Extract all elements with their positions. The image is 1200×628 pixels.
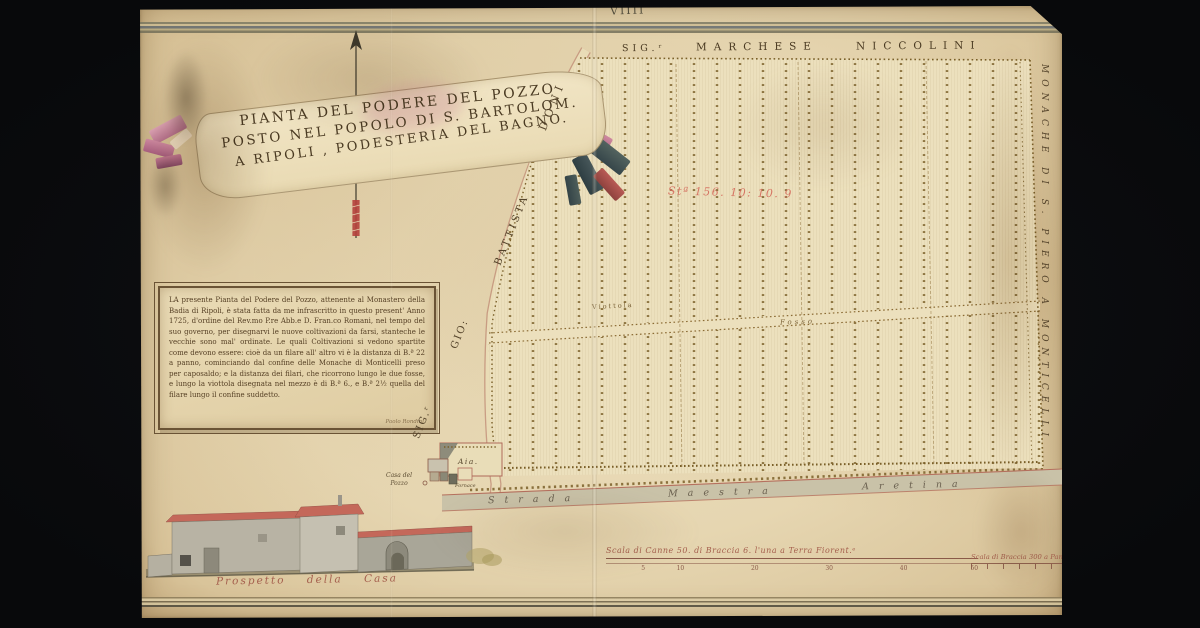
scale-bar-canne: Scala di Canne 50. di Braccia 6. l'una a… <box>606 546 988 573</box>
scale-bar-canne-ticks: 5 10 20 30 40 50 <box>606 564 978 573</box>
aia-label: Aia. <box>458 457 479 466</box>
neighbor-label-top-sig: SIG.ʳ <box>622 43 666 54</box>
scale-tick: 10 <box>677 565 685 572</box>
casa-label-line1: Casa del <box>386 472 412 480</box>
parchment-sheet: VIIII SIG.ʳ MARCHESE NICCOLINI MONACHE D… <box>140 6 1062 618</box>
fosso-label: Fosso <box>780 317 815 326</box>
casa-label-line2: Pozzo <box>386 480 412 488</box>
fornace-label: Fornace <box>455 483 476 489</box>
scale-tick: 5 <box>641 565 645 572</box>
casa-del-pozzo-label: Casa del Pozzo <box>386 472 412 488</box>
description-cartouche: LA presente Pianta del Podere del Pozzo,… <box>158 286 436 430</box>
scale-bar-canne-label: Scala di Canne 50. di Braccia 6. l'una a… <box>606 546 988 555</box>
scale-tick: 20 <box>751 565 759 572</box>
neighbor-label-right: MONACHE DI S. PIERO A MONTICELLI <box>1039 64 1049 474</box>
neighbor-label-top-niccolini: NICCOLINI <box>856 40 982 53</box>
scale-tick: 30 <box>825 565 833 572</box>
neighbor-label-top-marchese: MARCHESE <box>696 41 818 54</box>
scale-tick: 40 <box>900 565 908 572</box>
cartouche-text: LA presente Pianta del Podere del Pozzo,… <box>160 288 434 402</box>
